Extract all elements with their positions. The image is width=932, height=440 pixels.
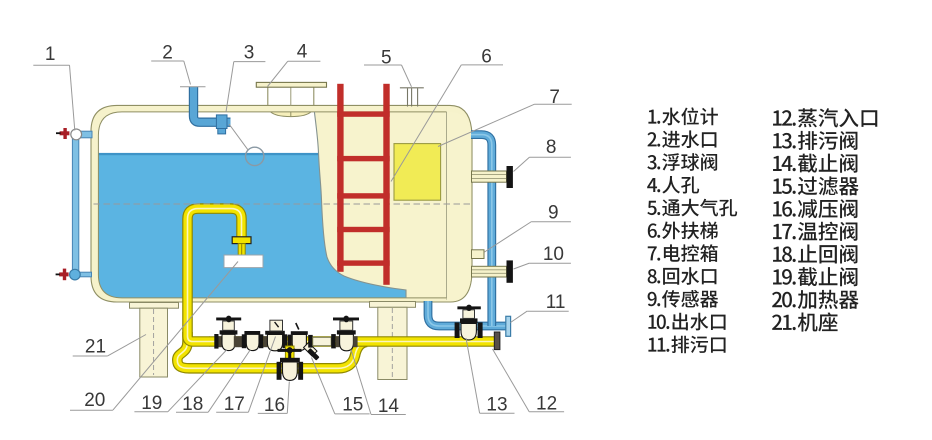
svg-text:3: 3 — [244, 42, 255, 63]
svg-text:13: 13 — [486, 395, 507, 416]
svg-text:19: 19 — [141, 393, 162, 414]
svg-text:7: 7 — [549, 87, 560, 108]
svg-text:1: 1 — [45, 44, 56, 65]
svg-text:12: 12 — [536, 393, 557, 414]
svg-text:5: 5 — [381, 47, 392, 68]
svg-text:21: 21 — [85, 337, 106, 358]
svg-text:18: 18 — [182, 394, 203, 415]
svg-text:9: 9 — [548, 202, 559, 223]
svg-text:4: 4 — [297, 41, 308, 62]
svg-text:17: 17 — [224, 394, 245, 415]
svg-text:11: 11 — [546, 292, 566, 313]
svg-text:15: 15 — [342, 395, 363, 416]
svg-text:10: 10 — [543, 244, 564, 265]
svg-text:16: 16 — [264, 395, 285, 416]
svg-text:6: 6 — [481, 46, 492, 67]
svg-text:14: 14 — [378, 396, 400, 417]
svg-text:8: 8 — [546, 137, 557, 158]
svg-text:20: 20 — [84, 390, 105, 411]
svg-text:2: 2 — [162, 42, 173, 63]
